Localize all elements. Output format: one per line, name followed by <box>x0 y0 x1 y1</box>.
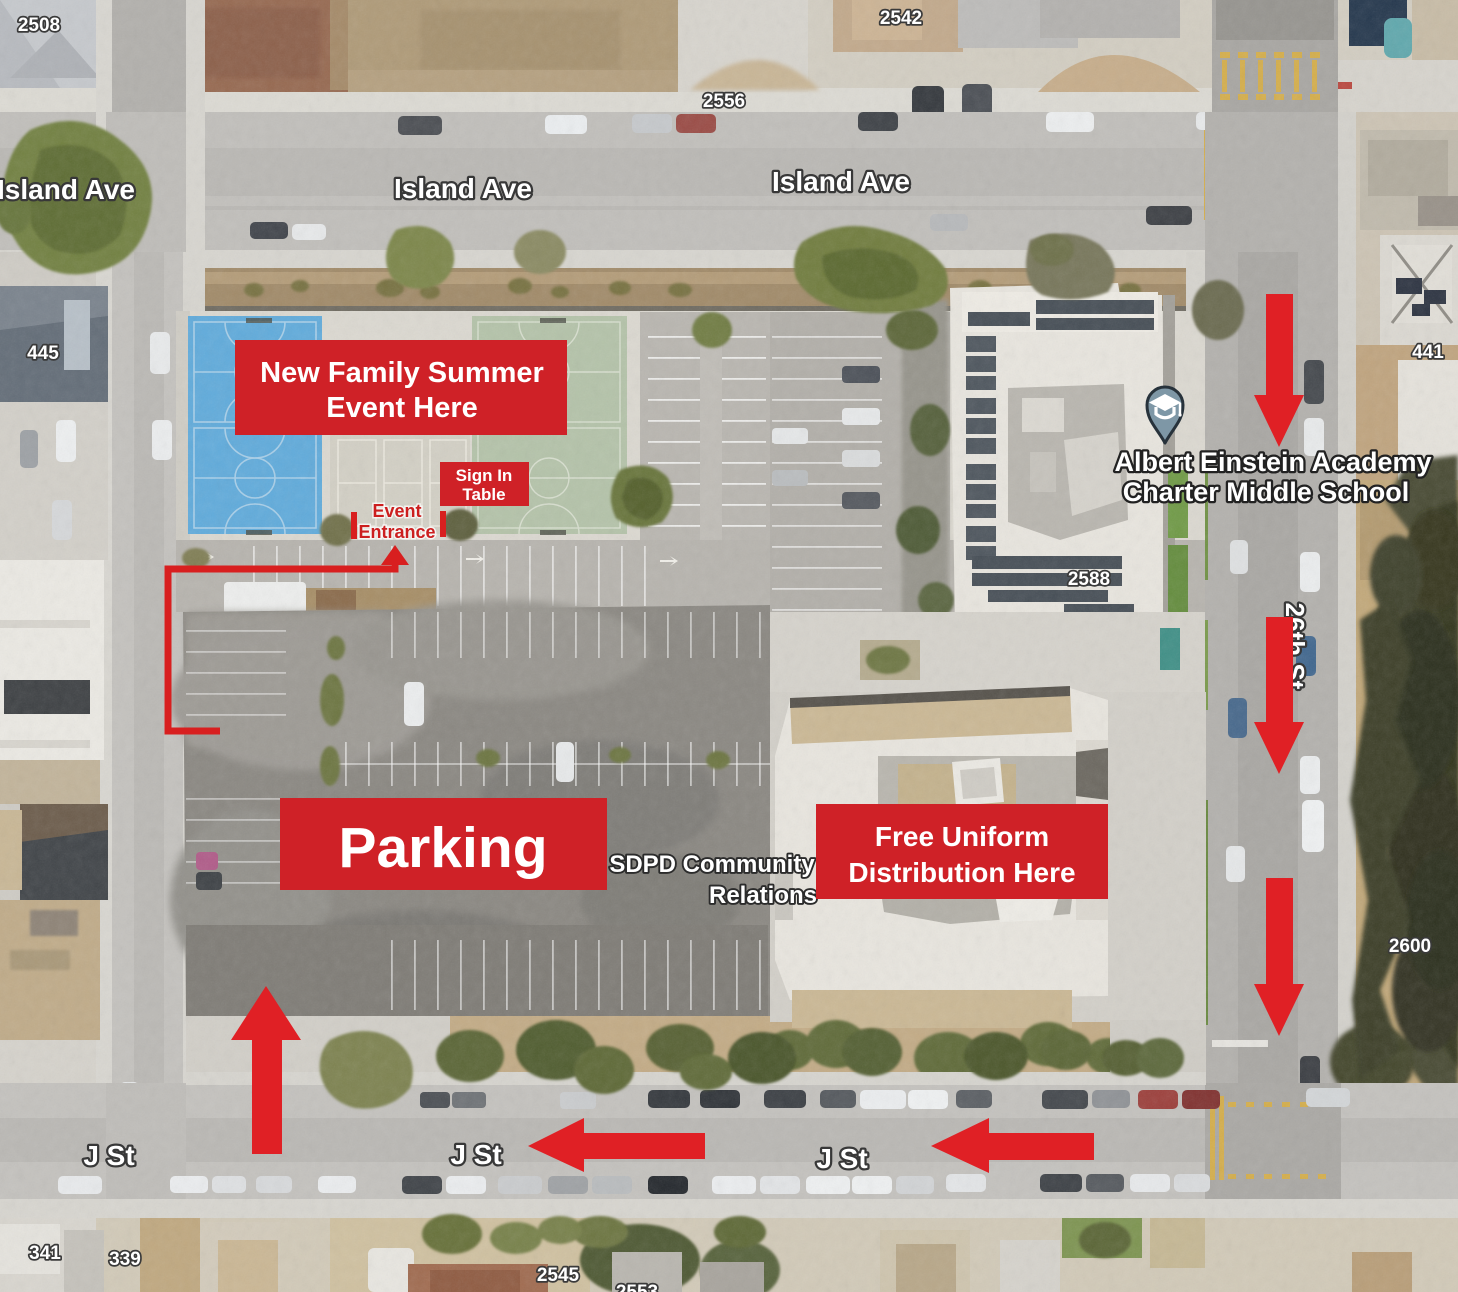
svg-text:SDPD Community: SDPD Community <box>609 851 815 878</box>
svg-text:Island Ave: Island Ave <box>772 166 910 197</box>
svg-text:Albert Einstein Academy: Albert Einstein Academy <box>1114 447 1431 477</box>
svg-text:2600: 2600 <box>1389 936 1431 957</box>
svg-text:Parking: Parking <box>338 816 547 880</box>
svg-text:2545: 2545 <box>537 1265 580 1286</box>
svg-text:Event Here: Event Here <box>326 392 478 424</box>
svg-text:J St: J St <box>816 1143 867 1174</box>
svg-text:2542: 2542 <box>880 8 922 29</box>
svg-text:Entrance: Entrance <box>358 522 435 542</box>
svg-text:Free Uniform: Free Uniform <box>875 821 1049 852</box>
svg-text:New Family Summer: New Family Summer <box>260 357 544 389</box>
svg-text:341: 341 <box>29 1243 61 1264</box>
svg-text:J St: J St <box>450 1139 501 1170</box>
svg-text:Distribution Here: Distribution Here <box>848 857 1075 888</box>
svg-text:Charter Middle School: Charter Middle School <box>1123 477 1410 507</box>
svg-text:Island Ave: Island Ave <box>0 174 135 205</box>
svg-text:2556: 2556 <box>703 91 745 112</box>
svg-text:2588: 2588 <box>1068 569 1110 590</box>
svg-text:Island Ave: Island Ave <box>394 173 532 204</box>
svg-text:Table: Table <box>462 485 505 504</box>
svg-text:2553: 2553 <box>616 1282 658 1292</box>
svg-text:441: 441 <box>1412 342 1444 363</box>
svg-text:445: 445 <box>27 343 59 364</box>
svg-text:Event: Event <box>372 501 421 521</box>
svg-text:J St: J St <box>83 1140 134 1171</box>
svg-text:339: 339 <box>109 1249 141 1270</box>
svg-text:Sign In: Sign In <box>456 466 513 485</box>
svg-text:Relations: Relations <box>709 882 817 909</box>
svg-text:2508: 2508 <box>18 15 60 36</box>
